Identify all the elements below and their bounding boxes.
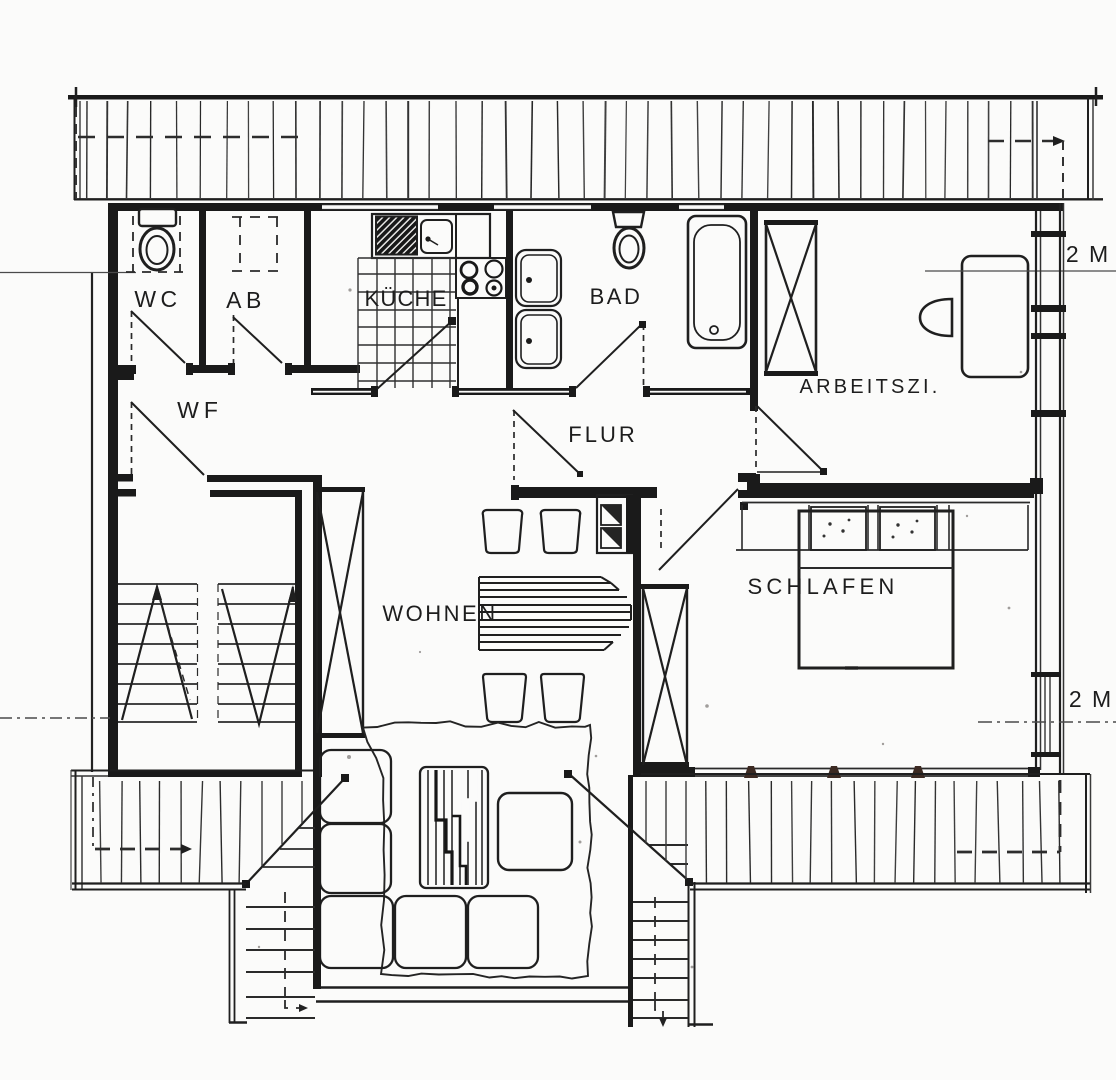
svg-text:FLUR: FLUR bbox=[568, 422, 637, 447]
svg-text:ARBEITSZI.: ARBEITSZI. bbox=[800, 376, 941, 398]
svg-text:SCHLAFEN: SCHLAFEN bbox=[748, 574, 899, 599]
svg-text:AB: AB bbox=[226, 287, 266, 313]
svg-text:BAD: BAD bbox=[590, 284, 643, 309]
svg-text:WF: WF bbox=[177, 397, 223, 423]
svg-text:KÜCHE: KÜCHE bbox=[364, 286, 447, 311]
svg-text:2 M: 2 M bbox=[1069, 686, 1113, 712]
svg-text:2 M: 2 M bbox=[1066, 241, 1110, 267]
svg-text:WC: WC bbox=[134, 286, 181, 312]
